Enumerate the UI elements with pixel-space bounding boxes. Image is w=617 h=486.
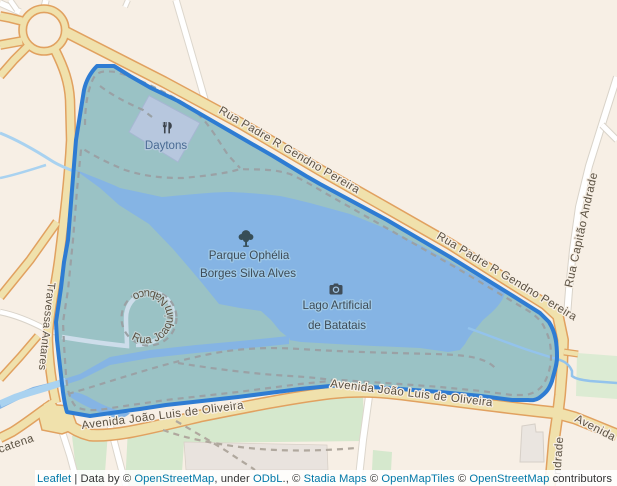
svg-text:Daytons: Daytons xyxy=(145,140,187,152)
svg-text:Leaflet | Data by © OpenStreet: Leaflet | Data by © OpenStreetMap, under… xyxy=(37,473,612,485)
svg-text:de Batatais: de Batatais xyxy=(308,319,366,332)
svg-text:Borges Silva Alves: Borges Silva Alves xyxy=(200,267,296,280)
svg-text:Parque Ophélia: Parque Ophélia xyxy=(209,249,290,262)
svg-text:Lago Artificial: Lago Artificial xyxy=(303,299,372,312)
